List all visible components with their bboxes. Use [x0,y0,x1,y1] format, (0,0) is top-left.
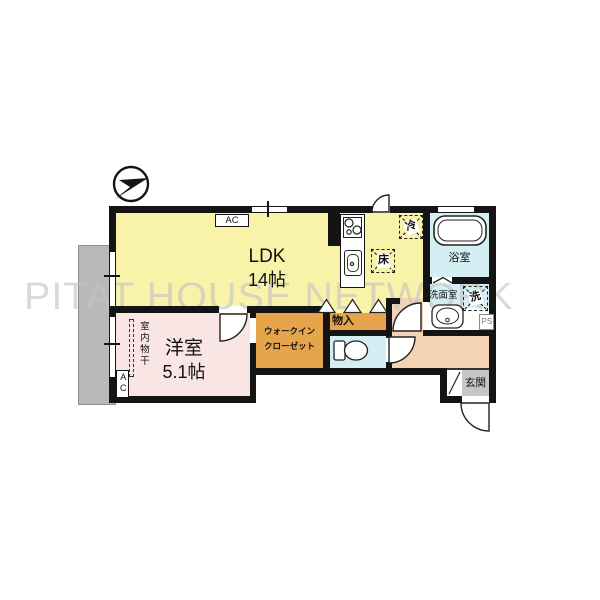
label-storage: 物入 [332,315,354,329]
wall-washroom-hall [423,330,489,336]
label-indoor-drying: 室内物干 [137,321,149,367]
room-bath [430,213,489,277]
wall-bath-washroom-1 [423,277,432,284]
floorplan: PITAT HOUSE NETWORK [0,0,600,600]
ldk-name: LDK [222,245,312,269]
wall-bottom-bedroom [109,396,256,403]
bedroom-name: 洋室 [138,337,230,361]
entrance-step-line [447,368,489,370]
wall-right [489,206,496,403]
window-ldk-balcony [109,252,116,308]
wall-kitchen-bath [423,206,430,302]
wall-kitchen-stub [328,213,340,246]
label-ldk: LDK 14帖 [222,245,312,291]
wall-top-1 [109,206,252,213]
north-arrow-icon [114,167,148,201]
label-bath: 浴室 [430,252,489,266]
wall-ldk-bedroom-2 [247,306,330,313]
kitchen-sink-basin [347,254,359,272]
label-ac-bedroom: AC [117,372,128,394]
label-pipe-space: PS [480,317,494,327]
wic-line2: クローゼット [256,339,323,354]
wall-entrance-bottom [440,396,462,403]
wall-ldk-bedroom-1 [109,306,219,313]
wall-top-2 [287,206,373,213]
bedroom-size: 5.1帖 [138,361,230,384]
entrance-step [447,370,462,396]
window-bedroom-balcony [109,317,116,377]
wall-bath-washroom-2 [452,277,496,284]
wall-toilet-right-1 [386,298,392,338]
window-top-ldk [252,206,287,213]
label-walk-in-closet: ウォークイン クローゼット [256,324,323,355]
wall-top-3 [390,206,438,213]
window-top-bath [438,206,474,213]
door-kitchen-service [372,195,389,212]
wall-bedroom-wic-1 [250,306,256,318]
indoor-drying-pole [129,319,134,377]
label-bedroom: 洋室 5.1帖 [138,337,230,383]
label-entrance: 玄関 [461,377,490,390]
label-ac-unit: AC [215,215,249,227]
door-entrance [461,403,489,431]
wall-wic-storage [323,306,330,375]
ldk-size: 14帖 [222,269,312,292]
wic-line1: ウォークイン [256,324,323,339]
wall-left-1 [109,206,116,252]
stove [343,217,362,238]
label-washroom: 洗面室 [429,290,458,302]
label-floor-hatch: 床 [377,254,390,268]
wall-bottom-middle [250,368,447,375]
wall-vestibule-stub [386,298,400,304]
room-toilet [330,336,386,368]
wall-storage-toilet [323,330,392,336]
wall-toilet-right-2 [386,362,392,375]
